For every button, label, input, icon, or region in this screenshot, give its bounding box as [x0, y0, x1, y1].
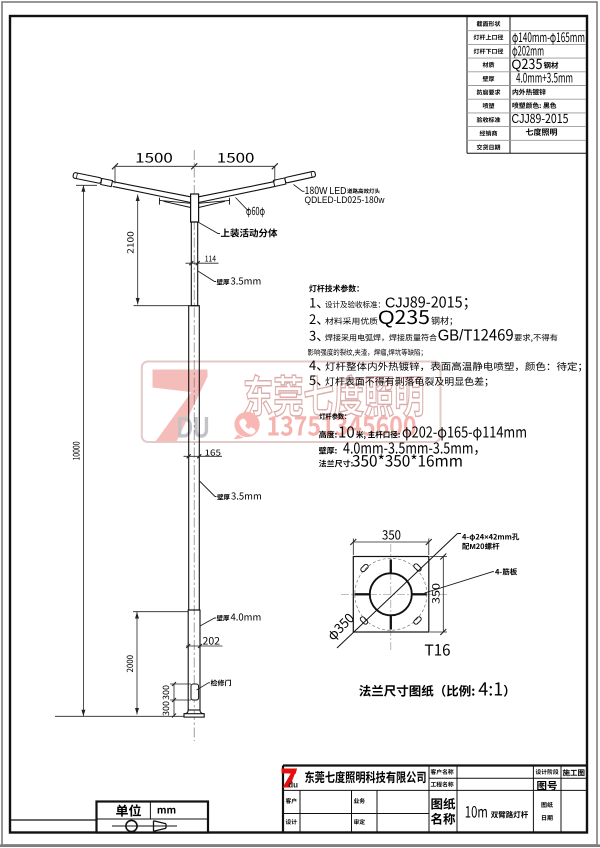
svg-text:图纸: 图纸: [541, 800, 553, 809]
svg-text:客户: 客户: [286, 796, 298, 805]
svg-text:单位: 单位: [115, 801, 141, 820]
svg-text:业务: 业务: [354, 796, 366, 805]
svg-text:2000: 2000: [124, 655, 136, 673]
svg-text:客户名称: 客户名称: [431, 767, 454, 776]
svg-text:检修门: 检修门: [211, 679, 232, 689]
svg-text:350: 350: [428, 582, 443, 604]
svg-text:QDLED-LD025-180w: QDLED-LD025-180w: [305, 193, 385, 206]
svg-text:1500: 1500: [217, 148, 255, 167]
svg-text:10m: 10m: [465, 801, 488, 823]
svg-text:300: 300: [160, 701, 172, 716]
svg-text:工程名称: 工程名称: [431, 780, 454, 789]
svg-text:验收标准: 验收标准: [476, 115, 500, 124]
svg-text:1500: 1500: [135, 148, 173, 167]
svg-text:上装活动分体: 上装活动分体: [221, 226, 279, 240]
svg-text:壁厚4.0mm: 壁厚4.0mm: [217, 609, 262, 623]
svg-text:4-筋板: 4-筋板: [495, 567, 518, 578]
svg-text:灯杆上口径: 灯杆上口径: [473, 33, 503, 42]
svg-text:壁厚3.5mm: 壁厚3.5mm: [217, 489, 262, 503]
svg-text:壁厚3.5mm: 壁厚3.5mm: [217, 273, 262, 287]
svg-text:mm: mm: [157, 802, 176, 817]
svg-text:165: 165: [205, 447, 222, 458]
svg-text:DU: DU: [177, 403, 210, 447]
svg-text:设计阶段: 设计阶段: [536, 767, 559, 776]
svg-text:审定: 审定: [354, 817, 366, 826]
svg-text:φ60φ: φ60φ: [246, 203, 265, 219]
svg-text:壁厚: 壁厚: [482, 74, 494, 83]
svg-text:设计: 设计: [286, 817, 298, 826]
svg-text:du: du: [288, 779, 298, 790]
svg-text:灯杆下口径: 灯杆下口径: [473, 46, 503, 55]
svg-text:4.0mm+3.5mm: 4.0mm+3.5mm: [516, 68, 573, 87]
svg-text:300: 300: [160, 685, 172, 700]
svg-text:350: 350: [382, 525, 401, 544]
svg-text:202: 202: [203, 633, 221, 648]
svg-text:图号: 图号: [537, 779, 558, 794]
svg-text:日期: 日期: [541, 813, 553, 822]
svg-text:内外热镀锌: 内外热镀锌: [512, 86, 546, 96]
svg-text:T16: T16: [425, 639, 451, 661]
svg-text:名称: 名称: [430, 809, 456, 828]
svg-text:施工图: 施工图: [563, 768, 586, 779]
svg-text:双臂路灯杆: 双臂路灯杆: [491, 810, 529, 821]
svg-text:防腐要求: 防腐要求: [476, 88, 500, 97]
svg-text:交货日期: 交货日期: [476, 142, 500, 151]
svg-text:CJJ89-2015: CJJ89-2015: [512, 108, 569, 127]
svg-text:东莞七度照明科技有限公司: 东莞七度照明科技有限公司: [305, 767, 427, 786]
svg-text:截面形状: 截面形状: [476, 19, 500, 28]
svg-text:114: 114: [205, 254, 217, 265]
svg-text:材质: 材质: [482, 60, 494, 69]
svg-text:配M20螺杆: 配M20螺杆: [462, 541, 500, 552]
svg-text:经销商: 经销商: [479, 129, 497, 138]
svg-text:喷塑: 喷塑: [482, 101, 494, 110]
svg-text:七度照明: 七度照明: [526, 127, 558, 138]
svg-text:2100: 2100: [125, 231, 137, 254]
svg-text:10000: 10000: [70, 442, 83, 461]
